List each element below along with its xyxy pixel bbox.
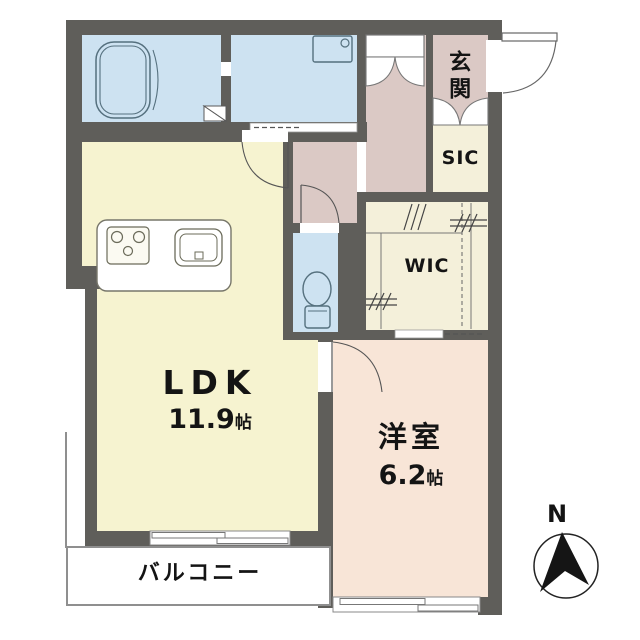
ldk-area: 11.9帖 [120,406,300,434]
sink-icon [175,229,222,266]
bathtub-icon [96,42,150,118]
plan-symbols [0,0,640,640]
entry-door-swing [503,41,556,93]
hall-closet [366,35,424,57]
ldk-area-unit: 帖 [235,413,252,433]
shoe-closet-label: SIC [433,149,488,169]
washer-faucet-icon [341,39,349,47]
ldk-door-opening [242,130,288,142]
toilet-door-opening [300,223,339,233]
western-room-area: 6.2帖 [330,462,492,490]
bathtub-inner [100,46,146,114]
western-room-area-value: 6.2 [379,460,427,491]
compass-north-arrow [540,532,589,592]
entrance-label: 玄関 [446,42,469,112]
walk-in-closet-label: WIC [398,257,456,277]
entry-door-opening [486,40,503,92]
wic-sliding-door [395,330,443,338]
window-sash [152,533,225,539]
closet-door-swing [395,57,424,86]
western-room-label: 洋室 [330,422,492,452]
closet-door-swing [366,57,395,86]
bedroom-door-opening [318,342,333,392]
floor-plan: LDK 11.9帖 洋室 6.2帖 玄関 SIC WIC バルコニー N [0,0,640,640]
toilet-icon [303,272,331,306]
hanger-pipe [404,204,426,230]
bath-counter-curve [153,50,158,110]
balcony-label: バルコニー [90,562,310,585]
toilet-tank-icon [305,306,330,328]
window-sash [340,599,425,605]
window-sash [217,538,288,544]
window-sash [418,605,478,611]
hanger-pipe [450,214,487,232]
toilet-door-swing [301,185,339,223]
western-room-area-unit: 帖 [426,469,443,489]
ldk-door-swing [242,142,288,188]
ldk-label: LDK [120,366,300,401]
washer-pan-icon [313,36,352,62]
bath-door-opening [221,62,231,76]
compass-north-label: N [542,502,572,527]
ldk-area-value: 11.9 [168,404,235,435]
bedroom-door-swing [333,342,382,392]
entry-door-leaf [502,33,557,41]
